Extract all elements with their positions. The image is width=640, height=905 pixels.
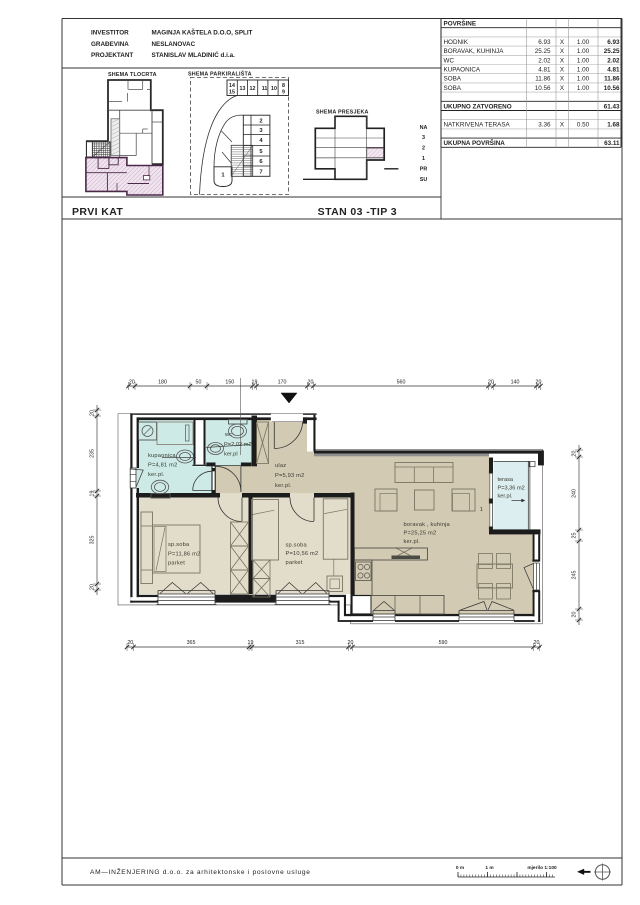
svg-text:sp.soba: sp.soba bbox=[168, 542, 190, 548]
svg-text:1.00: 1.00 bbox=[577, 39, 590, 46]
svg-text:560: 560 bbox=[397, 380, 406, 386]
svg-text:ulaz: ulaz bbox=[275, 463, 286, 469]
svg-text:2: 2 bbox=[259, 118, 262, 124]
svg-text:13: 13 bbox=[240, 86, 246, 92]
svg-text:MAGINJA KAŠTELA D.O.O, SPLIT: MAGINJA KAŠTELA D.O.O, SPLIT bbox=[152, 28, 253, 37]
svg-text:ker.pl.: ker.pl. bbox=[498, 494, 513, 500]
svg-text:7: 7 bbox=[259, 169, 262, 175]
svg-text:240: 240 bbox=[572, 489, 578, 498]
svg-text:20: 20 bbox=[308, 380, 314, 386]
svg-text:2.02: 2.02 bbox=[538, 57, 551, 64]
svg-text:NA: NA bbox=[420, 125, 428, 131]
svg-text:1.00: 1.00 bbox=[577, 67, 590, 74]
svg-text:25: 25 bbox=[572, 533, 578, 539]
svg-text:25.25: 25.25 bbox=[535, 48, 551, 55]
svg-text:WC: WC bbox=[444, 57, 455, 64]
svg-text:PRVI KAT: PRVI KAT bbox=[72, 206, 123, 218]
svg-text:0 m: 0 m bbox=[456, 865, 464, 871]
svg-text:20: 20 bbox=[488, 380, 494, 386]
svg-text:10: 10 bbox=[271, 86, 277, 92]
svg-text:STANISLAV MLADINIĆ d.i.a.: STANISLAV MLADINIĆ d.i.a. bbox=[152, 50, 236, 59]
svg-text:parket: parket bbox=[286, 560, 303, 566]
svg-text:mjerilo 1:100: mjerilo 1:100 bbox=[527, 865, 557, 871]
svg-text:GRAĐEVINA: GRAĐEVINA bbox=[91, 41, 129, 48]
svg-text:KUPAONICA: KUPAONICA bbox=[444, 67, 481, 74]
svg-text:20: 20 bbox=[536, 380, 542, 386]
svg-text:P=4,81 m2: P=4,81 m2 bbox=[148, 463, 177, 469]
svg-text:PR: PR bbox=[420, 167, 428, 173]
svg-text:11: 11 bbox=[262, 86, 268, 92]
svg-text:235: 235 bbox=[90, 449, 96, 458]
svg-text:15: 15 bbox=[229, 90, 235, 96]
svg-text:SU: SU bbox=[420, 177, 428, 183]
svg-text:SHEMA PARKIRALIŠTA: SHEMA PARKIRALIŠTA bbox=[188, 70, 252, 78]
svg-text:1.68: 1.68 bbox=[607, 122, 620, 129]
svg-text:20: 20 bbox=[90, 410, 96, 416]
svg-text:NESLANOVAC: NESLANOVAC bbox=[152, 41, 196, 48]
svg-text:11.86: 11.86 bbox=[604, 76, 620, 83]
svg-text:wc: wc bbox=[224, 432, 232, 438]
svg-text:3.36: 3.36 bbox=[538, 122, 551, 129]
svg-text:2.02: 2.02 bbox=[607, 57, 620, 64]
svg-text:boravak , kuhinja: boravak , kuhinja bbox=[404, 522, 451, 528]
svg-text:150: 150 bbox=[225, 380, 234, 386]
svg-text:PROJEKTANT: PROJEKTANT bbox=[91, 52, 133, 59]
svg-text:SHEMA TLOCRTA: SHEMA TLOCRTA bbox=[108, 72, 157, 78]
svg-text:P=10,56 m2: P=10,56 m2 bbox=[286, 551, 319, 557]
svg-text:STAN 03 -TIP 3: STAN 03 -TIP 3 bbox=[318, 206, 397, 218]
svg-text:61.43: 61.43 bbox=[604, 103, 620, 110]
svg-text:parket: parket bbox=[168, 561, 185, 567]
svg-text:P=5,93 m2: P=5,93 m2 bbox=[275, 473, 304, 479]
svg-text:0.50: 0.50 bbox=[577, 122, 590, 129]
svg-text:325: 325 bbox=[90, 536, 96, 545]
svg-text:11.86: 11.86 bbox=[535, 76, 551, 83]
svg-text:SOBA: SOBA bbox=[444, 76, 462, 83]
svg-text:19: 19 bbox=[90, 491, 96, 497]
svg-text:10.56: 10.56 bbox=[604, 85, 620, 92]
svg-text:4.81: 4.81 bbox=[538, 67, 551, 74]
svg-text:INVESTITOR: INVESTITOR bbox=[91, 30, 129, 37]
svg-text:1.00: 1.00 bbox=[577, 57, 590, 64]
svg-text:UKUPNO ZATVORENO: UKUPNO ZATVORENO bbox=[444, 103, 512, 110]
svg-text:20: 20 bbox=[127, 640, 133, 646]
svg-text:19: 19 bbox=[248, 640, 254, 646]
svg-text:20: 20 bbox=[534, 640, 540, 646]
svg-text:P=25,25 m2: P=25,25 m2 bbox=[404, 530, 437, 536]
svg-text:1: 1 bbox=[422, 156, 425, 162]
svg-text:14: 14 bbox=[229, 83, 235, 89]
svg-text:9: 9 bbox=[282, 90, 285, 96]
svg-text:1.00: 1.00 bbox=[577, 85, 590, 92]
svg-text:POVRŠINE: POVRŠINE bbox=[444, 19, 477, 28]
svg-text:20: 20 bbox=[572, 451, 578, 457]
svg-text:SOBA: SOBA bbox=[444, 85, 462, 92]
svg-text:20: 20 bbox=[90, 584, 96, 590]
svg-text:1 m: 1 m bbox=[485, 865, 493, 871]
svg-text:590: 590 bbox=[439, 640, 448, 646]
svg-text:315: 315 bbox=[296, 640, 305, 646]
svg-text:UKUPNA POVRŠINA: UKUPNA POVRŠINA bbox=[444, 138, 506, 147]
svg-text:4.81: 4.81 bbox=[607, 67, 620, 74]
svg-text:20: 20 bbox=[129, 380, 135, 386]
svg-text:1.00: 1.00 bbox=[577, 48, 590, 55]
svg-text:63.11: 63.11 bbox=[604, 140, 620, 147]
svg-text:19: 19 bbox=[252, 380, 258, 386]
svg-text:2: 2 bbox=[422, 146, 425, 152]
svg-text:245: 245 bbox=[572, 571, 578, 580]
svg-text:10.56: 10.56 bbox=[535, 85, 551, 92]
svg-text:180: 180 bbox=[158, 380, 167, 386]
svg-text:ker.pl.: ker.pl. bbox=[275, 483, 292, 489]
svg-text:P=2,02 m2: P=2,02 m2 bbox=[224, 442, 252, 448]
svg-text:BORAVAK, KUHINJA: BORAVAK, KUHINJA bbox=[444, 48, 505, 55]
svg-text:HODNIK: HODNIK bbox=[444, 39, 469, 46]
svg-text:ker.pl.: ker.pl. bbox=[404, 539, 421, 545]
svg-text:20: 20 bbox=[348, 640, 354, 646]
svg-text:6.93: 6.93 bbox=[607, 39, 620, 46]
svg-text:1: 1 bbox=[480, 507, 483, 513]
svg-text:50: 50 bbox=[196, 380, 202, 386]
svg-text:170: 170 bbox=[278, 380, 287, 386]
svg-text:ker.pl.: ker.pl. bbox=[148, 472, 165, 478]
svg-text:P=3,36 m2: P=3,36 m2 bbox=[498, 486, 525, 492]
svg-text:kupaonica: kupaonica bbox=[148, 453, 176, 459]
svg-text:P=11,86 m2: P=11,86 m2 bbox=[168, 551, 200, 557]
svg-text:140: 140 bbox=[511, 380, 520, 386]
svg-text:AM—INŽENJERING d.o.o. za ar: AM—INŽENJERING d.o.o. za arhitektonske i… bbox=[90, 867, 311, 876]
svg-text:8: 8 bbox=[282, 83, 285, 89]
svg-text:3: 3 bbox=[422, 135, 425, 141]
svg-text:20: 20 bbox=[572, 612, 578, 618]
svg-text:12: 12 bbox=[250, 86, 256, 92]
svg-text:sp.soba: sp.soba bbox=[286, 543, 308, 549]
svg-text:6.93: 6.93 bbox=[538, 39, 551, 46]
svg-text:25.25: 25.25 bbox=[604, 48, 620, 55]
svg-text:SHEMA PRESJEKA: SHEMA PRESJEKA bbox=[316, 110, 369, 116]
svg-text:ker.pl: ker.pl bbox=[224, 452, 238, 458]
svg-text:365: 365 bbox=[187, 640, 196, 646]
svg-text:1.00: 1.00 bbox=[577, 76, 590, 83]
svg-text:terasa: terasa bbox=[498, 477, 514, 483]
svg-text:NATKRIVENA TERASA: NATKRIVENA TERASA bbox=[444, 122, 511, 129]
